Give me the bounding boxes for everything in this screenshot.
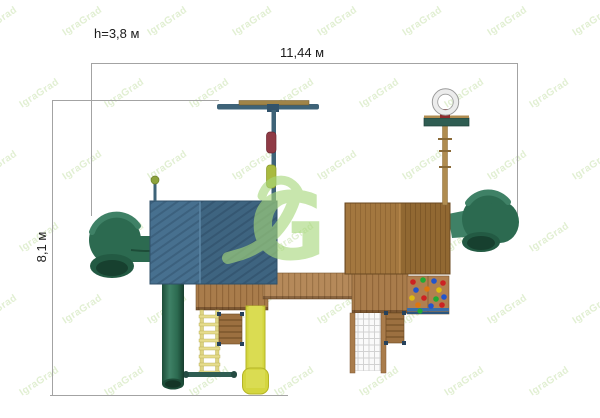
right-stairs bbox=[384, 311, 406, 345]
basketball-backboard bbox=[424, 118, 469, 126]
ladder-ground-rail bbox=[183, 371, 237, 378]
right-deck bbox=[352, 273, 408, 313]
drawing-canvas: IgraGradIgraGradIgraGradIgraGradIgraGrad… bbox=[0, 0, 600, 418]
flag-post bbox=[151, 176, 159, 201]
rope-net bbox=[350, 313, 386, 373]
wooden-ladder bbox=[199, 310, 220, 376]
basketball-post bbox=[443, 124, 448, 205]
right-tube-slide bbox=[448, 192, 519, 252]
climbing-wall bbox=[407, 276, 449, 314]
swing-seat-red bbox=[267, 132, 277, 153]
exit-tube-cylinder bbox=[162, 280, 184, 390]
right-tower-roof bbox=[345, 203, 450, 274]
left-tube-slide bbox=[89, 214, 154, 278]
logo-letter: G bbox=[249, 173, 326, 282]
basketball-hoop bbox=[424, 89, 469, 205]
center-stairs bbox=[217, 312, 244, 346]
playground-top-view: G bbox=[0, 0, 600, 418]
straight-slide-yellow bbox=[243, 306, 269, 394]
